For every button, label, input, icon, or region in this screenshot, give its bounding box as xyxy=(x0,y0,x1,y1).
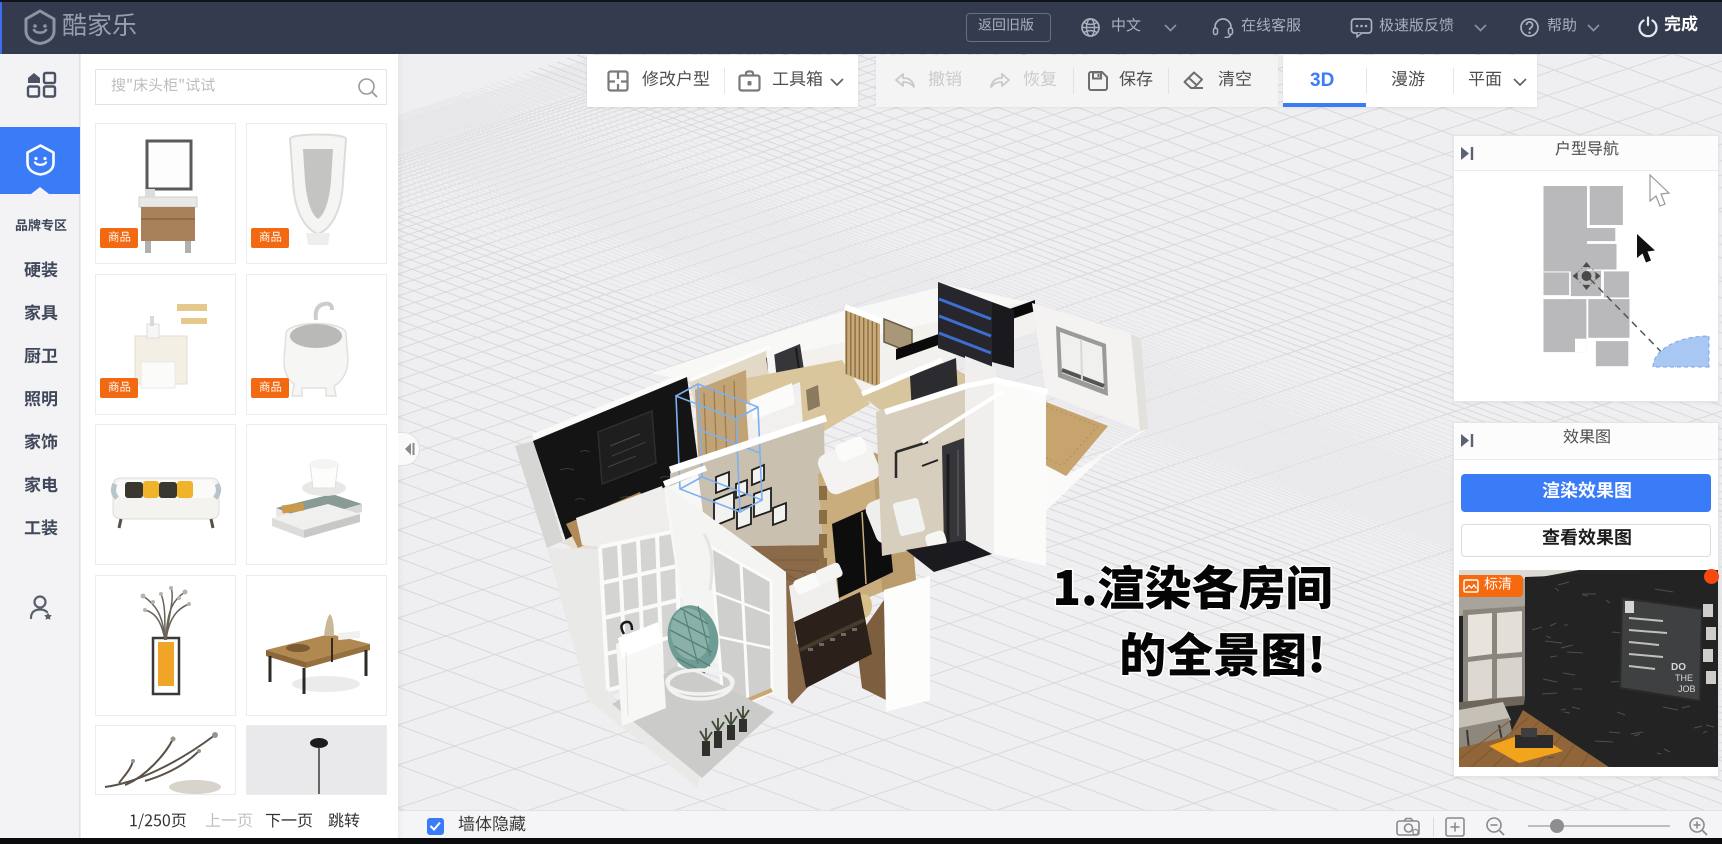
svg-text:THE: THE xyxy=(1675,673,1693,683)
svg-text:DO: DO xyxy=(1671,662,1686,673)
svg-text:JOB: JOB xyxy=(1678,684,1696,694)
